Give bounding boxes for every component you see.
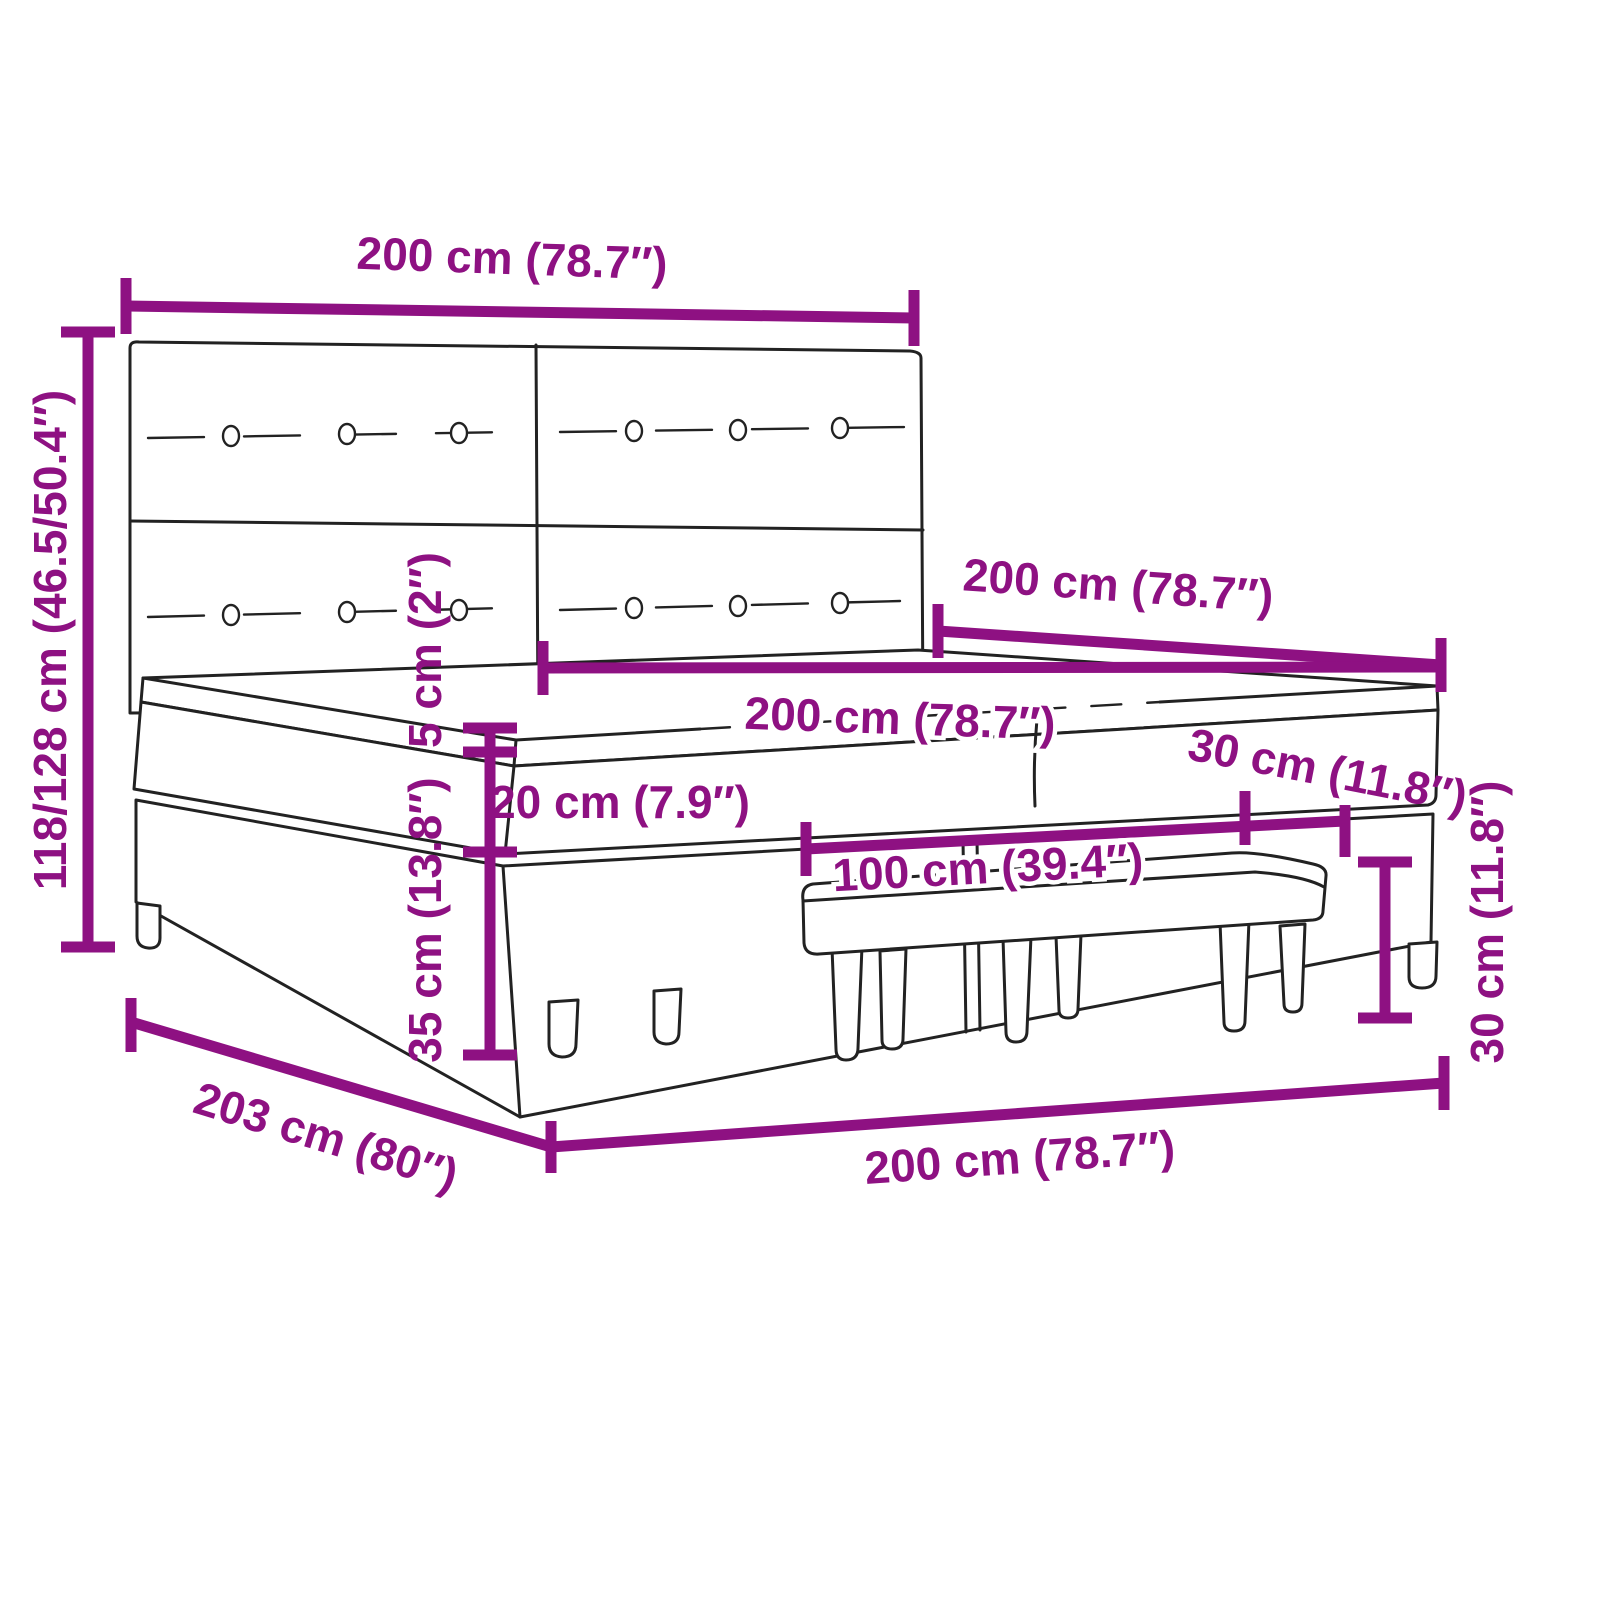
bench-leg [1003,936,1031,1042]
bench-leg [880,949,906,1049]
dim-mattress-width-label: 200 cm (78.7″) [744,687,1057,750]
bed-leg [1409,942,1437,988]
dim-base-height-label: 35 cm (13.8″) [399,777,451,1062]
tufting-button [730,596,746,616]
dim-headboard-width-label: 200 cm (78.7″) [356,227,669,290]
tufting-button [832,593,848,613]
tufting-button [832,418,848,438]
bed-leg [654,989,681,1044]
tufting-button [223,426,239,446]
tufting-button [339,424,355,444]
bench-leg [832,946,862,1060]
dim-floor-length-label: 203 cm (80″) [188,1072,464,1201]
tufting-button [451,600,467,620]
dimension-diagram: 200 cm (78.7″) 118/128 cm (46.5/50.4″) 2… [0,0,1600,1600]
tufting-button [223,605,239,625]
dim-total-height-label: 118/128 cm (46.5/50.4″) [24,390,76,890]
dim-floor-width-label: 200 cm (78.7″) [863,1120,1177,1194]
tufting-button [339,602,355,622]
bed-leg [137,903,160,948]
dim-total-height: 118/128 cm (46.5/50.4″) [24,332,115,947]
tufting-button [730,420,746,440]
dim-mattress-thickness-label: 20 cm (7.9″) [490,776,750,828]
diagram-canvas: 200 cm (78.7″) 118/128 cm (46.5/50.4″) 2… [0,0,1600,1600]
tufting-button [451,423,467,443]
tufting-button [626,598,642,618]
bench-leg [1220,920,1249,1031]
dim-topper-thickness-label: 5 cm (2″) [399,552,451,748]
dim-bench-height-label: 30 cm (11.8″) [1461,781,1513,1064]
bench-leg [1056,934,1081,1018]
bench-leg [1280,924,1305,1012]
dim-headboard-width: 200 cm (78.7″) [126,227,914,346]
tufting-button [626,421,642,441]
bed-leg [549,1000,578,1057]
dim-bed-length-label: 200 cm (78.7″) [961,548,1275,622]
